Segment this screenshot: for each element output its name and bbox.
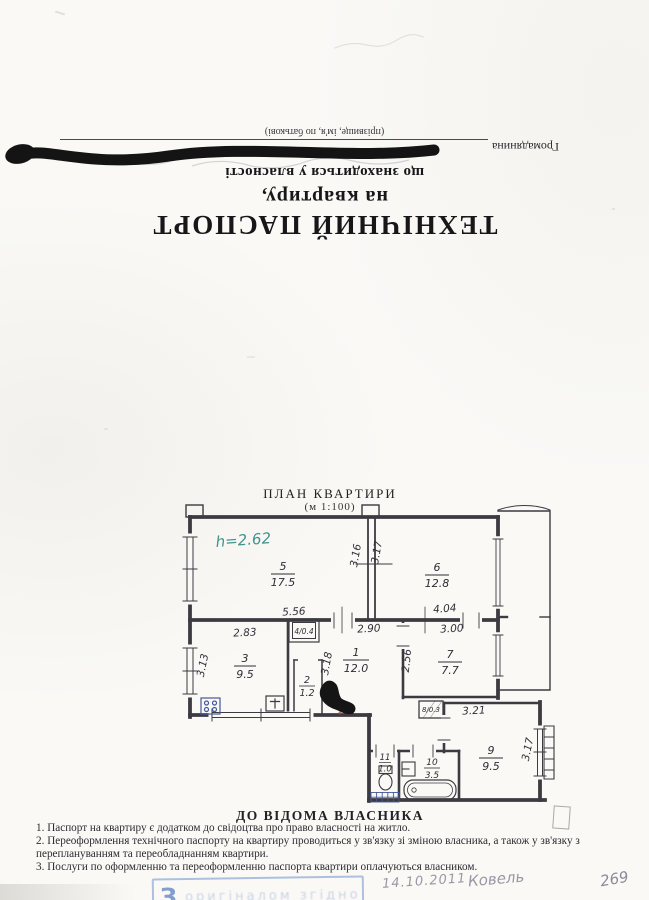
sink-icon	[266, 696, 284, 711]
room-area: 17.5	[271, 576, 296, 589]
room-label: 1	[353, 646, 360, 659]
room-label: 10	[426, 758, 438, 768]
notice-item: 1. Паспорт на квартиру є додатком до сві…	[36, 822, 632, 835]
dimension: 5.56	[282, 605, 306, 618]
room-area: 12.0	[344, 662, 369, 675]
room-area: 9.5	[482, 760, 500, 773]
dimension: 2.56	[400, 648, 414, 673]
room-area: 1.0	[378, 765, 392, 775]
bath-sink-icon	[402, 762, 415, 776]
room-area: 3.5	[425, 771, 440, 781]
room-area: 1.2	[299, 688, 314, 699]
notice-paragraphs: 1. Паспорт на квартиру є додатком до сві…	[36, 822, 632, 875]
dimension: 2.90	[357, 622, 381, 635]
windows	[183, 537, 546, 776]
notice-item: 3. Послуги по оформленню та переоформлен…	[36, 861, 632, 874]
dimension: 3.00	[440, 622, 464, 635]
interior-walls	[288, 620, 540, 800]
dimension: 3.21	[462, 704, 486, 717]
closet-label: 8/0.3	[422, 706, 440, 714]
ink-blot	[320, 681, 356, 715]
ceiling-height-note: h=2.62	[215, 529, 272, 551]
room-label: 11	[380, 753, 391, 763]
room-label: 3	[242, 652, 249, 665]
corner-mark	[552, 805, 571, 829]
pencil-scribble	[335, 35, 423, 48]
room-label: 5	[280, 560, 287, 573]
stamp-text: оригіналом згідно	[185, 887, 361, 900]
copy-stamp: З оригіналом згідно	[152, 876, 365, 900]
dimension: 2.83	[233, 626, 257, 639]
dimension: 3.13	[195, 653, 212, 678]
notice-item: 2. Переоформлення технічного паспорту на…	[36, 835, 632, 861]
stamp-letter: З	[160, 883, 177, 900]
room-label: 2	[304, 675, 310, 686]
room-label: 6	[434, 561, 441, 574]
room-area: 9.5	[236, 668, 254, 681]
room-label: 9	[488, 744, 495, 757]
room5-6-wall	[356, 517, 392, 620]
dimension: 4.04	[433, 602, 457, 616]
closet-label: 4/0.4	[294, 627, 313, 636]
dimension: 3.18	[319, 651, 335, 676]
scanned-technical-passport-page: ТЕХНІЧНИЙ ПАСПОРТ на квартиру, що знаход…	[0, 0, 649, 900]
room-area: 7.7	[441, 664, 459, 677]
dimension-labels: 5.56 2.83 2.90 4.04 3.00 3.21 3.16 3.17 …	[195, 540, 537, 762]
dimension: 3.17	[520, 736, 537, 762]
room-label: 7	[447, 648, 454, 661]
room-area: 12.8	[425, 577, 450, 590]
bathtub-icon	[404, 780, 456, 800]
dimension: 3.17	[369, 540, 385, 565]
floor-plan: h=2.62 5 17.5 6 12.8 3 9.5 1 12.0 2 1.2 …	[0, 0, 649, 900]
